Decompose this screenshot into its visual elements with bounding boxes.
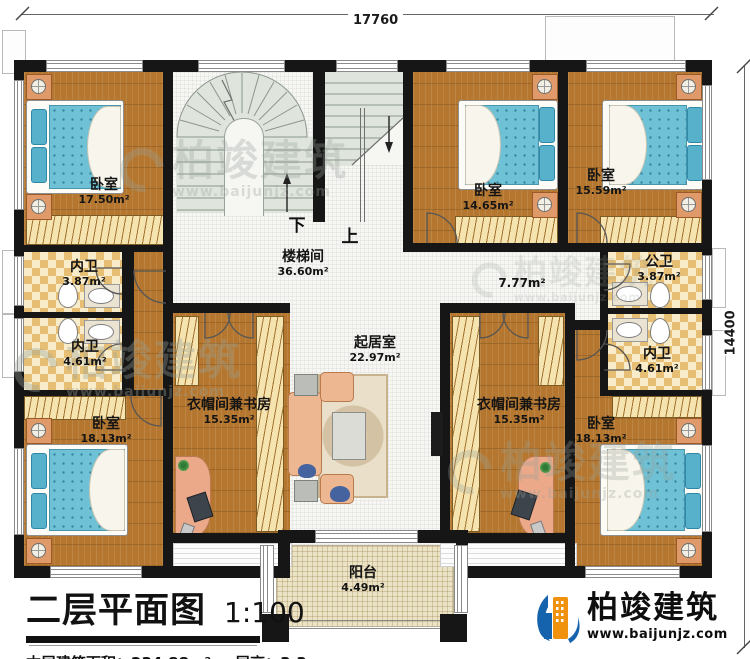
room-area: 22.97m² bbox=[349, 352, 400, 364]
armchair bbox=[320, 372, 354, 402]
room-name: 衣帽间兼书房 bbox=[187, 398, 271, 414]
nightstand bbox=[676, 538, 702, 564]
room-name: 公卫 bbox=[645, 255, 673, 271]
nightstand bbox=[532, 192, 558, 218]
pillow bbox=[31, 109, 47, 145]
lamp-icon bbox=[31, 199, 46, 214]
window bbox=[14, 256, 24, 306]
lamp-icon bbox=[31, 423, 46, 438]
wall bbox=[163, 60, 173, 578]
plant bbox=[540, 462, 551, 473]
pillow bbox=[687, 107, 703, 143]
room-name: 内卫 bbox=[70, 260, 98, 276]
room-area: 18.13m² bbox=[575, 433, 626, 445]
nightstand bbox=[532, 74, 558, 100]
window bbox=[14, 448, 24, 535]
pillow bbox=[685, 493, 701, 529]
sink bbox=[88, 324, 114, 340]
room-name: 阳台 bbox=[349, 566, 377, 582]
brand-logo: 柏竣建筑 www.baijunjz.com bbox=[534, 589, 728, 645]
room-area: 4.61m² bbox=[63, 356, 106, 368]
lamp-icon bbox=[681, 79, 696, 94]
room-label-stair-hall: 楼梯间 36.60m² bbox=[277, 250, 328, 278]
room-label-bedroom-bl: 卧室 18.13m² bbox=[80, 417, 131, 445]
room-name: 卧室 bbox=[587, 169, 615, 185]
nightstand bbox=[676, 192, 702, 218]
room-area: 15.35m² bbox=[493, 414, 544, 426]
room-area: 4.61m² bbox=[635, 363, 678, 375]
lamp-icon bbox=[31, 543, 46, 558]
window bbox=[446, 60, 530, 72]
lamp-icon bbox=[537, 79, 552, 94]
lamp-icon bbox=[537, 197, 552, 212]
room-label-bedroom-t1: 卧室 14.65m² bbox=[462, 184, 513, 212]
room-name: 卧室 bbox=[474, 184, 502, 200]
room-label-bedroom-tl: 卧室 17.50m² bbox=[78, 178, 129, 206]
room-area: 4.49m² bbox=[341, 582, 384, 594]
height-label: 层高： bbox=[235, 654, 280, 659]
pillow bbox=[539, 145, 555, 181]
window bbox=[14, 318, 24, 372]
room-name: 卧室 bbox=[90, 178, 118, 194]
stair-up-label: 上 bbox=[342, 222, 359, 247]
wall bbox=[24, 390, 163, 396]
wall bbox=[440, 303, 575, 313]
nightstand bbox=[26, 418, 52, 444]
brand-logo-icon bbox=[534, 589, 580, 645]
nightstand bbox=[26, 538, 52, 564]
room-area: 14.65m² bbox=[462, 200, 513, 212]
window-sill bbox=[712, 248, 726, 308]
room-name: 卧室 bbox=[587, 417, 615, 433]
tv bbox=[431, 412, 443, 456]
wall bbox=[163, 533, 290, 543]
wall bbox=[278, 530, 290, 578]
balcony-post bbox=[440, 614, 467, 642]
window bbox=[702, 445, 712, 532]
dimension-width: 17760 bbox=[348, 13, 403, 28]
wall bbox=[24, 312, 132, 318]
wardrobe bbox=[600, 216, 702, 244]
wall bbox=[173, 303, 290, 313]
page-title: 二层平面图 bbox=[26, 582, 206, 633]
wall bbox=[403, 60, 413, 252]
area-label: 本层建筑面积： bbox=[26, 654, 131, 659]
room-area: 3.87m² bbox=[62, 276, 105, 288]
room-area: 15.35m² bbox=[203, 414, 254, 426]
height-value: 3.3m bbox=[280, 654, 322, 659]
blanket bbox=[89, 449, 125, 531]
lamp-icon bbox=[681, 197, 696, 212]
nightstand bbox=[26, 74, 52, 100]
window bbox=[585, 566, 680, 578]
bed bbox=[458, 100, 558, 190]
room-label-bath-l2: 内卫 4.61m² bbox=[63, 340, 106, 368]
wardrobe bbox=[455, 216, 558, 244]
room-label-cloak-l: 衣帽间兼书房 15.35m² bbox=[187, 398, 271, 426]
room-name: 卧室 bbox=[92, 417, 120, 433]
room-area: 17.50m² bbox=[78, 194, 129, 206]
stair-straight-floor bbox=[325, 72, 403, 166]
bed bbox=[600, 444, 704, 536]
room-area: 7.77m² bbox=[498, 277, 545, 290]
room-label-bath-r: 内卫 4.61m² bbox=[635, 347, 678, 375]
wall bbox=[24, 245, 173, 252]
wall bbox=[608, 308, 702, 314]
window bbox=[46, 60, 143, 72]
room-area: 36.60m² bbox=[277, 266, 328, 278]
room-name: 衣帽间兼书房 bbox=[477, 398, 561, 414]
title-block: 二层平面图 1:100 本层建筑面积：234.88m²层高：3.3m bbox=[26, 582, 322, 659]
wardrobe bbox=[612, 396, 702, 418]
room-label-bedroom-br: 卧室 18.13m² bbox=[575, 417, 626, 445]
floor-plan-canvas: 17760 14400 bbox=[0, 0, 750, 659]
wardrobe bbox=[452, 316, 480, 532]
plant bbox=[178, 460, 189, 471]
wall bbox=[608, 390, 702, 396]
brand-name: 柏竣建筑 bbox=[587, 593, 728, 624]
stair-down-label: 下 bbox=[289, 211, 306, 236]
room-area: 15.59m² bbox=[575, 185, 626, 197]
room-label-bedroom-t2: 卧室 15.59m² bbox=[575, 169, 626, 197]
room-label-living: 起居室 22.97m² bbox=[349, 336, 400, 364]
balcony-rail bbox=[454, 545, 468, 613]
eave bbox=[173, 543, 292, 567]
room-area: 3.87m² bbox=[637, 271, 680, 283]
person-figure bbox=[330, 486, 350, 502]
wardrobe bbox=[538, 316, 564, 386]
room-label-balcony: 阳台 4.49m² bbox=[341, 566, 384, 594]
window bbox=[198, 60, 285, 72]
wall bbox=[313, 60, 325, 222]
room-label-hallway: 7.77m² bbox=[498, 277, 545, 290]
room-label-bath-public: 公卫 3.87m² bbox=[637, 255, 680, 283]
pillow bbox=[31, 493, 47, 529]
nightstand bbox=[676, 418, 702, 444]
window bbox=[702, 85, 712, 180]
wall bbox=[122, 252, 134, 390]
dimension-height: 14400 bbox=[724, 312, 739, 356]
window bbox=[702, 255, 712, 300]
wall bbox=[575, 320, 608, 330]
stair-void bbox=[224, 118, 264, 216]
coffee-table bbox=[332, 412, 366, 460]
lamp-icon bbox=[681, 423, 696, 438]
room-area: 18.13m² bbox=[80, 433, 131, 445]
side-table bbox=[294, 480, 318, 502]
side-table bbox=[294, 374, 318, 396]
pillow bbox=[31, 147, 47, 183]
toilet bbox=[650, 282, 670, 308]
wall bbox=[413, 243, 702, 252]
pillow bbox=[31, 453, 47, 489]
person-figure bbox=[298, 464, 316, 478]
sink bbox=[616, 322, 642, 338]
window bbox=[14, 80, 24, 210]
area-value: 234.88m² bbox=[131, 654, 211, 659]
window bbox=[586, 60, 686, 72]
roof-outline bbox=[545, 16, 675, 62]
bed bbox=[26, 444, 128, 536]
brand-website: www.baijunjz.com bbox=[587, 627, 728, 642]
lamp-icon bbox=[31, 79, 46, 94]
dimension-line-right bbox=[744, 66, 745, 648]
lamp-icon bbox=[681, 543, 696, 558]
room-name: 起居室 bbox=[354, 336, 396, 352]
room-name: 内卫 bbox=[71, 340, 99, 356]
pillow bbox=[539, 107, 555, 143]
blanket bbox=[87, 106, 121, 188]
room-name: 楼梯间 bbox=[282, 250, 324, 266]
pillow bbox=[687, 145, 703, 181]
window bbox=[702, 335, 712, 390]
toilet bbox=[650, 318, 670, 344]
window bbox=[50, 566, 142, 578]
room-name: 内卫 bbox=[643, 347, 671, 363]
window bbox=[336, 60, 398, 72]
wardrobe bbox=[175, 316, 199, 386]
room-label-bath-l1: 内卫 3.87m² bbox=[62, 260, 105, 288]
pillow bbox=[685, 453, 701, 489]
title-underline bbox=[26, 636, 260, 643]
sink bbox=[616, 286, 642, 302]
floor-stats: 本层建筑面积：234.88m²层高：3.3m bbox=[26, 652, 322, 659]
nightstand bbox=[26, 194, 52, 220]
nightstand bbox=[676, 74, 702, 100]
sink bbox=[88, 288, 114, 304]
sliding-door bbox=[315, 530, 418, 543]
drawing-scale: 1:100 bbox=[224, 596, 305, 629]
wall bbox=[558, 60, 568, 252]
room-label-cloak-r: 衣帽间兼书房 15.35m² bbox=[477, 398, 561, 426]
